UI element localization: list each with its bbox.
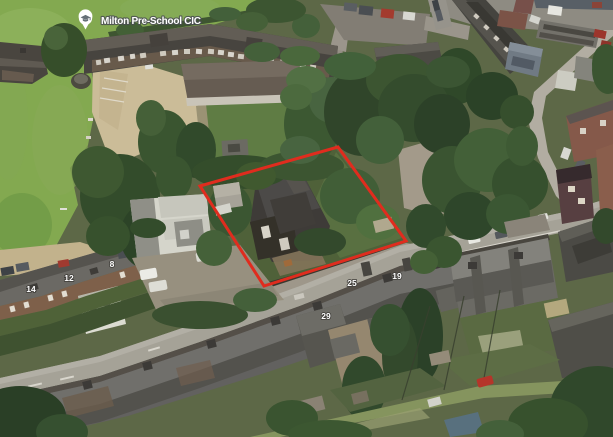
svg-text:12: 12 [64, 273, 74, 283]
svg-text:25: 25 [347, 278, 357, 288]
svg-text:Milton Pre-School CIC: Milton Pre-School CIC [101, 16, 201, 27]
svg-text:8: 8 [110, 259, 115, 269]
svg-text:19: 19 [392, 271, 402, 281]
svg-text:14: 14 [26, 284, 36, 294]
svg-text:29: 29 [321, 311, 331, 321]
